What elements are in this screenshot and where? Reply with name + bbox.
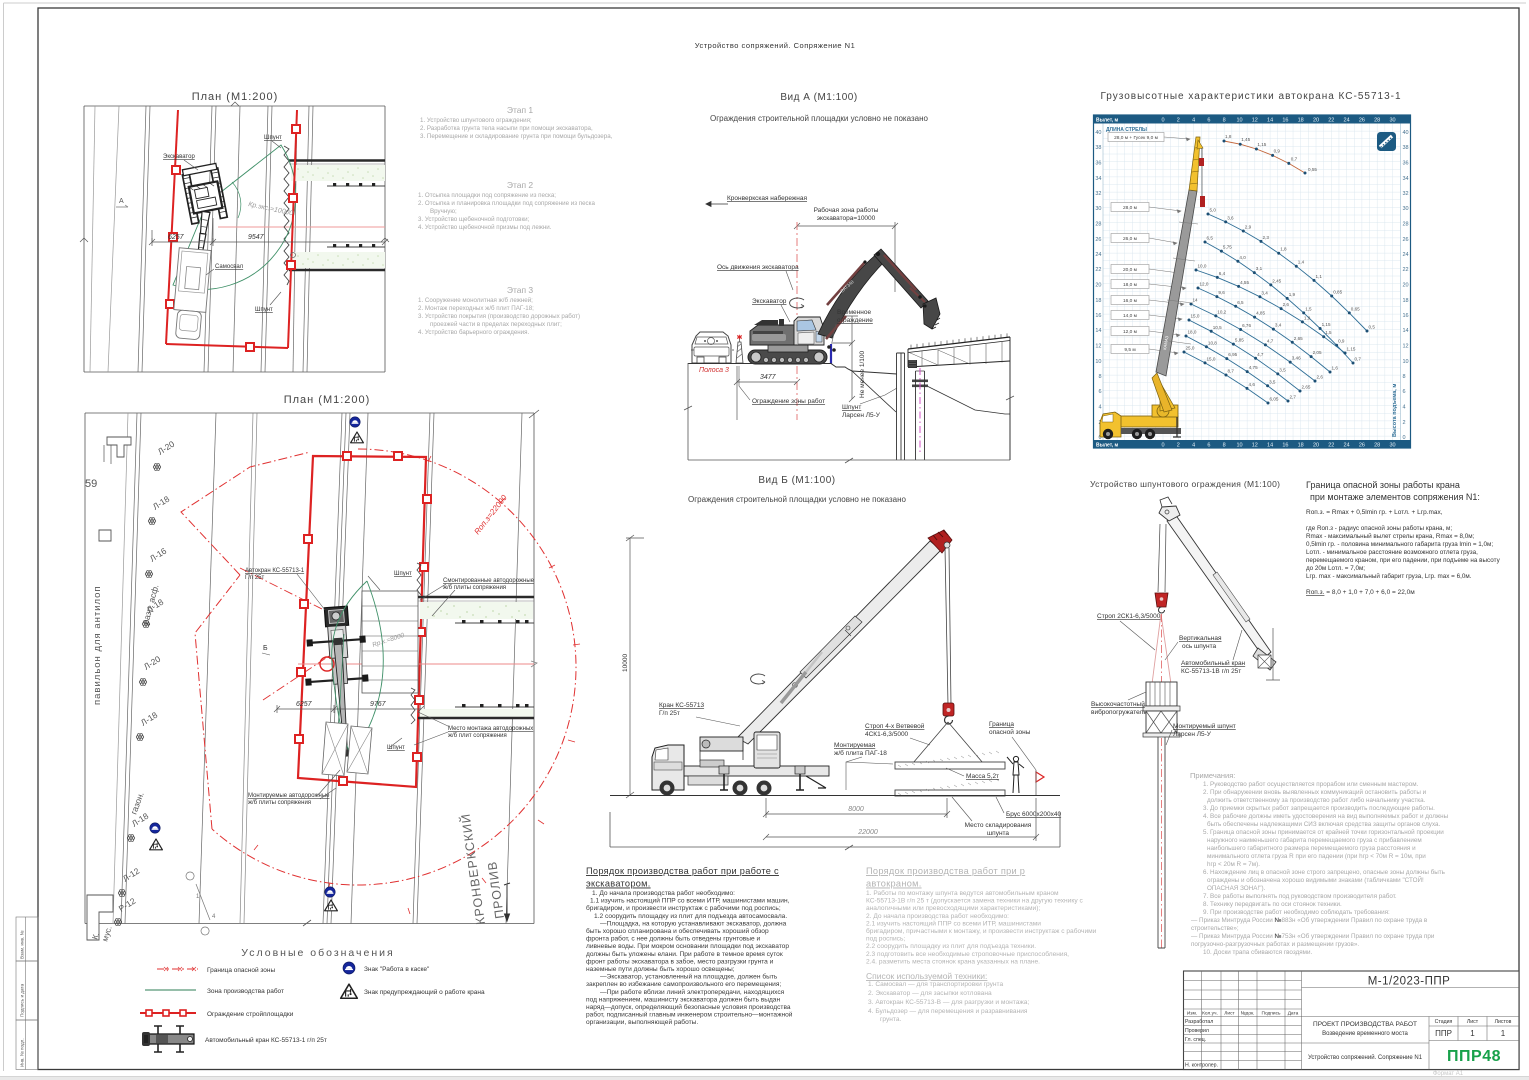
svg-text:Кран КС-55713: Кран КС-55713 [659, 702, 704, 709]
svg-text:4,6: 4,6 [1249, 382, 1256, 387]
svg-text:бригадиром, причастными к м: бригадиром, причастными к монтажу, и про… [866, 927, 1097, 935]
svg-text:Листов: Листов [1495, 1019, 1512, 1025]
svg-text:24: 24 [1095, 252, 1101, 258]
svg-text:26: 26 [1403, 237, 1409, 243]
svg-text:20: 20 [1403, 283, 1409, 289]
svg-text:28,0 м: 28,0 м [1123, 205, 1137, 211]
svg-text:Шпунт: Шпунт [264, 135, 282, 141]
svg-text:Устройство сопряжений. Сопря: Устройство сопряжений. Сопряжение N1 [695, 41, 856, 50]
svg-text:работ, подписанный главным: работ, подписанный главным инженером стр… [586, 1011, 793, 1019]
svg-text:18: 18 [1095, 298, 1101, 304]
svg-text:Устройство шпунтового огражден: Устройство шпунтового ограждения (М1:100… [1090, 479, 1280, 489]
svg-text:экскаватором.: экскаватором. [586, 879, 651, 889]
svg-text:1. Работы по монтажу шпунта: 1. Работы по монтажу шпунта ведутся авто… [866, 889, 1059, 897]
svg-text:28: 28 [1374, 118, 1380, 124]
svg-text:7. Все работы выполнять под: 7. Все работы выполнять под руководством… [1203, 892, 1397, 900]
svg-text:4,7: 4,7 [1267, 338, 1274, 343]
svg-text:Этап 3: Этап 3 [507, 285, 534, 295]
svg-text:1,15: 1,15 [1347, 347, 1356, 352]
svg-text:Ларсен Л5-У: Ларсен Л5-У [1173, 731, 1212, 738]
svg-text:1. Отсыпка площадки под соп: 1. Отсыпка площадки под сопряжение из пе… [418, 192, 556, 199]
svg-text:5,75: 5,75 [1223, 245, 1232, 250]
svg-text:Этап 1: Этап 1 [507, 105, 534, 115]
svg-text:5,0: 5,0 [1210, 208, 1217, 213]
svg-text:Кол.уч.: Кол.уч. [1202, 1011, 1218, 1017]
svg-text:2,6: 2,6 [1317, 375, 1324, 380]
svg-text:ж/б плиты сопряжения: ж/б плиты сопряжения [443, 585, 506, 591]
svg-text:6257: 6257 [296, 701, 313, 708]
svg-text:ж/б плит сопряжения: ж/б плит сопряжения [448, 733, 507, 739]
svg-text:Порядок производства работ: Порядок производства работ при работе с [586, 866, 779, 876]
svg-text:2.2 соорудить площадку из: 2.2 соорудить площадку из плит для подъе… [866, 943, 1036, 950]
svg-text:9,6: 9,6 [1218, 290, 1225, 295]
svg-text:24: 24 [1344, 118, 1350, 124]
svg-text:22: 22 [1403, 267, 1409, 273]
svg-text:14: 14 [1267, 443, 1273, 449]
svg-text:Знак предупреждающий о рабо: Знак предупреждающий о работе крана [364, 988, 485, 996]
svg-text:hгр < 20м R = 7м).: hгр < 20м R = 7м). [1207, 861, 1260, 868]
svg-text:Грузовысотные характеристики: Грузовысотные характеристики автокрана К… [1100, 91, 1401, 102]
svg-text:24: 24 [1344, 443, 1350, 449]
svg-text:опасной зоны: опасной зоны [989, 728, 1031, 736]
svg-text:Ларсен Л5-У: Ларсен Л5-У [842, 412, 881, 419]
svg-text:12,0 м: 12,0 м [1123, 329, 1137, 335]
svg-text:Временное: Временное [837, 309, 871, 316]
svg-text:Rоп.з. = Rmax + 0,5lmin г: Rоп.з. = Rmax + 0,5lmin гр. + Lотл. + Lг… [1306, 509, 1443, 516]
svg-text:10,2: 10,2 [1217, 309, 1226, 314]
svg-text:Устройство сопряжений. Сопря: Устройство сопряжений. Сопряжение N1 [1308, 1054, 1423, 1061]
svg-text:где Rоп.з - радиус опасной зон: где Rоп.з - радиус опасной зоны работы к… [1306, 524, 1452, 532]
svg-text:Строп 2СК1-6,3/5000: Строп 2СК1-6,3/5000 [1097, 613, 1161, 620]
svg-text:3. До приемки скрытых работ: 3. До приемки скрытых работ запрещается … [1203, 804, 1435, 812]
svg-text:9. При производстве работ не: 9. При производстве работ необходимо соб… [1203, 908, 1390, 916]
svg-text:Формат А1: Формат А1 [1433, 1071, 1464, 1077]
svg-text:должить ответственному за прои: должить ответственному за производство р… [1207, 796, 1426, 804]
svg-text:40: 40 [1403, 130, 1409, 136]
svg-text:1,8: 1,8 [1225, 134, 1232, 139]
svg-text:1,9: 1,9 [1289, 292, 1296, 297]
svg-text:Автомобильный кран КС-55713-: Автомобильный кран КС-55713-1 г/п 25т [205, 1036, 327, 1044]
svg-text:ППР: ППР [1435, 1029, 1452, 1038]
svg-text:наряд—допуск, определяющий б: наряд—допуск, определяющий безопасные ус… [586, 1003, 791, 1011]
svg-text:4. Бульдозер — для перем: 4. Бульдозер — для перемещения и разравн… [868, 1008, 1028, 1015]
svg-text:Rоп.з. = 8,0 + 1,0 + 7,0: Rоп.з. = 8,0 + 1,0 + 7,0 + 6,0 = 22,0м [1306, 589, 1415, 596]
svg-text:ось шпунта: ось шпунта [1182, 643, 1217, 650]
svg-text:0,9: 0,9 [1338, 339, 1345, 344]
svg-text:9767: 9767 [370, 701, 387, 708]
svg-text:Примечания:: Примечания: [1190, 771, 1235, 780]
svg-text:10. Доски трапа сбиваются гвоз: 10. Доски трапа сбиваются гвоздями. [1203, 948, 1312, 956]
svg-text:12: 12 [1252, 443, 1258, 449]
svg-text:1,6: 1,6 [1332, 366, 1339, 371]
svg-text:организации, выполняющей раб: организации, выполняющей работы. [586, 1018, 698, 1026]
svg-text:6. Нахождение лиц в опасной: 6. Нахождение лиц в опасной зоне строго … [1203, 868, 1446, 876]
svg-text:Н. контролер.: Н. контролер. [1185, 1063, 1218, 1069]
svg-text:3477: 3477 [760, 374, 777, 381]
svg-text:Граница опасной зоны работы кр: Граница опасной зоны работы крана [1306, 480, 1460, 490]
svg-text:28: 28 [1403, 222, 1409, 228]
svg-text:— Приказ Минтруда России №: — Приказ Минтруда России №883н «Об утвер… [1191, 916, 1428, 924]
svg-text:М-1/2023-ППР: М-1/2023-ППР [1368, 976, 1451, 988]
svg-text:2. До начала производства р: 2. До начала производства работ необходи… [866, 912, 1009, 920]
svg-text:шпунта: шпунта [987, 830, 1009, 837]
svg-text:перемещаемого краном, при его: перемещаемого краном, при его падении, п… [1306, 557, 1501, 564]
svg-text:8: 8 [1403, 374, 1406, 380]
svg-text:2. Монтаж переходных ж/б пл: 2. Монтаж переходных ж/б плит ПАГ-18; [418, 305, 534, 312]
svg-text:1.1 изучить настоящий ППР: 1.1 изучить настоящий ППР со всеми ИТР, … [590, 897, 790, 905]
svg-text:Лист: Лист [1224, 1011, 1235, 1017]
svg-text:59: 59 [85, 478, 97, 490]
svg-text:Автомобильный кран: Автомобильный кран [1181, 659, 1246, 667]
svg-text:до 20м Lотл. = 7,0м;: до 20м Lотл. = 7,0м; [1306, 565, 1365, 572]
svg-text:1. Руководство работ осущест: 1. Руководство работ осуществляется прор… [1203, 780, 1419, 788]
svg-text:Лист: Лист [1467, 1019, 1479, 1025]
svg-text:3. Устройство покрытия (про: 3. Устройство покрытия (производство дор… [418, 313, 580, 320]
svg-text:Вид А (М1:100): Вид А (М1:100) [780, 92, 857, 103]
svg-text:Ось движения экскаватора: Ось движения экскаватора [717, 264, 799, 271]
svg-text:Полоса 3: Полоса 3 [699, 367, 729, 374]
svg-text:Масса 5,2т: Масса 5,2т [966, 773, 999, 780]
svg-text:10: 10 [1403, 359, 1409, 365]
svg-text:Шпунт: Шпунт [255, 307, 273, 313]
svg-text:6: 6 [1403, 389, 1406, 395]
svg-text:наземные пути должны быть: наземные пути должны быть хорошо освещен… [586, 965, 735, 973]
svg-text:36: 36 [1403, 161, 1409, 167]
svg-text:4. Устройство щебеночной пр: 4. Устройство щебеночной призмы под лежн… [418, 224, 552, 231]
svg-text:16: 16 [1282, 118, 1288, 124]
svg-text:аналогичными или превосходящ: аналогичными или превосходящими характер… [866, 905, 1040, 912]
svg-text:минимального отлета груза R пр: минимального отлета груза R при его паде… [1207, 853, 1426, 860]
svg-text:закреплен во избежание само: закреплен во избежание самопроизвольного… [586, 980, 781, 988]
svg-text:4,55: 4,55 [1240, 280, 1249, 285]
svg-text:10: 10 [1236, 118, 1242, 124]
svg-text:Рабочая зона работы: Рабочая зона работы [814, 206, 879, 214]
svg-text:20: 20 [1095, 283, 1101, 289]
svg-text:ж/б плита ПАГ-18: ж/б плита ПАГ-18 [834, 749, 887, 757]
svg-text:2,65: 2,65 [1294, 336, 1303, 341]
svg-text:5. Граница опасной зоны прин: 5. Граница опасной зоны принимается от к… [1203, 828, 1444, 836]
svg-text:18: 18 [1403, 298, 1409, 304]
svg-text:6: 6 [1207, 118, 1210, 124]
svg-text:ж/б плиты сопряжения: ж/б плиты сопряжения [248, 800, 311, 806]
svg-text:0,7: 0,7 [1291, 156, 1298, 161]
svg-text:должны быть уложены елани.: должны быть уложены елани. При работе в … [586, 950, 783, 958]
svg-text:ограждены и обозначена хорош: ограждены и обозначена хорошо видимыми з… [1207, 875, 1424, 884]
svg-text:1,8: 1,8 [1280, 247, 1287, 252]
svg-text:Ограждение зоны работ: Ограждение зоны работ [752, 397, 825, 405]
svg-text:0: 0 [1161, 443, 1164, 449]
svg-text:Дата: Дата [1288, 1011, 1299, 1017]
svg-text:под роспись;: под роспись; [866, 936, 905, 943]
svg-text:наибольшего габаритного размер: наибольшего габаритного размера перемеща… [1207, 844, 1416, 852]
svg-text:16: 16 [1403, 313, 1409, 319]
svg-text:Монтируемые автодорожные: Монтируемые автодорожные [248, 793, 330, 799]
svg-text:14: 14 [1267, 118, 1273, 124]
svg-text:8: 8 [1223, 443, 1226, 449]
svg-text:18,0 м: 18,0 м [1123, 282, 1137, 288]
svg-text:4,7: 4,7 [1257, 352, 1264, 357]
svg-text:6,5: 6,5 [1237, 300, 1244, 305]
svg-text:2,9: 2,9 [1245, 225, 1252, 230]
svg-text:15,0: 15,0 [1207, 356, 1216, 361]
svg-text:ограждение: ограждение [837, 317, 873, 324]
svg-text:погрузочно-разгрузочных работа: погрузочно-разгрузочных работах и размещ… [1191, 940, 1359, 948]
svg-text:грунта.: грунта. [880, 1016, 902, 1023]
svg-text:Подпись и дата: Подпись и дата [20, 984, 25, 1017]
svg-text:Вылет, м: Вылет, м [1096, 443, 1119, 449]
svg-text:16: 16 [1095, 313, 1101, 319]
svg-text:1: 1 [1470, 1029, 1475, 1038]
svg-text:Брус 6000х200х40: Брус 6000х200х40 [1006, 811, 1061, 818]
svg-text:Изм.: Изм. [1187, 1011, 1197, 1017]
svg-text:26: 26 [1359, 443, 1365, 449]
svg-text:Знак "Работа в каске": Знак "Работа в каске" [364, 965, 430, 973]
svg-text:14: 14 [1193, 298, 1199, 303]
svg-text:ПРОЕКТ ПРОИЗВОДСТВА РАБОТ: ПРОЕКТ ПРОИЗВОДСТВА РАБОТ [1313, 1021, 1417, 1028]
svg-text:План (М1:200): План (М1:200) [284, 394, 371, 406]
svg-text:ОПАСНАЯ ЗОНА!").: ОПАСНАЯ ЗОНА!"). [1207, 885, 1266, 892]
svg-text:2: 2 [1177, 443, 1180, 449]
svg-text:5,85: 5,85 [1235, 338, 1244, 343]
svg-text:1,5: 1,5 [1305, 306, 1312, 311]
svg-text:10,0: 10,0 [1198, 264, 1207, 269]
svg-text:2. Экскаватор — для засы: 2. Экскаватор — для засыпки котлована [868, 990, 992, 997]
svg-text:1,5: 1,5 [1325, 330, 1332, 335]
svg-text:2.1 изучить настоящий: 2.1 изучить настоящий ППР со всеми ИТР, … [866, 919, 1041, 927]
svg-text:26: 26 [1095, 237, 1101, 243]
svg-text:10: 10 [1236, 443, 1242, 449]
svg-text:Разработал: Разработал [1185, 1019, 1213, 1025]
svg-text:КС-55713-1В г/п 25т: КС-55713-1В г/п 25т [1181, 668, 1241, 675]
svg-text:6,95: 6,95 [1228, 352, 1237, 357]
svg-text:16: 16 [1282, 443, 1288, 449]
svg-text:1,15: 1,15 [1257, 142, 1266, 147]
svg-text:4. Все рабочие должны иметь: 4. Все рабочие должны иметь удостоверени… [1203, 812, 1449, 820]
svg-text:8. Технику передвигать по ос: 8. Технику передвигать по оси стоянок те… [1203, 901, 1342, 908]
svg-text:3,5: 3,5 [1269, 379, 1276, 384]
svg-text:4: 4 [1098, 405, 1101, 411]
svg-text:быть обеспечены надлежащими СИ: быть обеспечены надлежащими СИЗ включая … [1207, 820, 1441, 828]
svg-text:2.3 подготовить все необход: 2.3 подготовить все необходимые стропово… [866, 950, 1069, 958]
svg-text:Шпунт: Шпунт [394, 571, 412, 577]
svg-text:Высота подъема, м: Высота подъема, м [1392, 384, 1398, 437]
svg-text:30: 30 [1389, 118, 1395, 124]
svg-text:под напряжением, машинисту: под напряжением, машинисту экскаватора д… [586, 995, 780, 1003]
svg-text:вибропогружатель: вибропогружатель [1091, 708, 1147, 716]
svg-text:6,5: 6,5 [1207, 236, 1214, 241]
svg-text:бригадиром, и произвести ин: бригадиром, и произвести инструктаж с ра… [586, 904, 781, 912]
svg-text:Шпунт: Шпунт [842, 404, 861, 411]
svg-text:38: 38 [1403, 145, 1409, 151]
svg-text:фронт работы экскаватора в: фронт работы экскаватора в забое, место … [586, 957, 774, 965]
svg-text:ливневые воды. При мокром: ливневые воды. При мокром основании площ… [586, 943, 789, 950]
svg-text:Подпись: Подпись [1262, 1011, 1281, 1017]
svg-text:№док.: №док. [1240, 1011, 1254, 1017]
svg-text:строительстве»;: строительстве»; [1191, 925, 1239, 932]
svg-text:2,05: 2,05 [1313, 350, 1322, 355]
svg-text:ППР48: ППР48 [1447, 1048, 1501, 1065]
svg-text:Инв. № подл.: Инв. № подл. [20, 1038, 25, 1067]
svg-text:Порядок производства: Порядок производства работ при р [866, 866, 1025, 876]
svg-text:1. Сооружение монолитная ж/: 1. Сооружение монолитная ж/б лежней; [418, 297, 533, 304]
svg-text:Монтируемая: Монтируемая [834, 742, 876, 749]
svg-text:Rmax - максимальный вылет с: Rmax - максимальный вылет стрелы крана, … [1306, 532, 1475, 540]
svg-text:4: 4 [1192, 443, 1195, 449]
svg-text:26,0 м: 26,0 м [1123, 236, 1137, 242]
svg-text:6: 6 [1098, 389, 1101, 395]
svg-text:экскаватора=10000: экскаватора=10000 [817, 215, 876, 222]
svg-text:30: 30 [1389, 443, 1395, 449]
svg-text:3. Перемещение и складирова: 3. Перемещение и складирование грунта пр… [420, 133, 613, 140]
svg-text:22: 22 [1095, 267, 1101, 273]
svg-text:2,7: 2,7 [1290, 395, 1297, 400]
svg-text:28: 28 [1374, 443, 1380, 449]
svg-text:30: 30 [1095, 206, 1101, 212]
svg-text:15,0: 15,0 [1191, 314, 1200, 319]
svg-text:—При работе вблизи линий э: —При работе вблизи линий электропередачи… [600, 988, 785, 996]
svg-text:18,0: 18,0 [1188, 330, 1197, 335]
svg-text:34: 34 [1403, 176, 1409, 182]
svg-text:1.2 соорудить площадку из: 1.2 соорудить площадку из плит для подъе… [594, 913, 787, 920]
svg-text:14: 14 [1095, 328, 1101, 334]
svg-text:3,4: 3,4 [1261, 290, 1268, 295]
svg-text:Шпунт: Шпунт [387, 745, 405, 751]
svg-text:Кронверкская набережная: Кронверкская набережная [727, 194, 807, 202]
svg-text:План (М1:200): План (М1:200) [192, 91, 279, 103]
svg-text:1,9: 1,9 [1304, 315, 1311, 320]
svg-text:16,0 м: 16,0 м [1123, 298, 1137, 304]
svg-text:3. Автокран КС-55713-В —: 3. Автокран КС-55713-В — для разгрузки и… [868, 999, 1029, 1006]
svg-text:фронта работ, с нее: фронта работ, с нее должны быть отведены… [586, 935, 761, 943]
svg-text:1,45: 1,45 [1241, 137, 1250, 142]
svg-text:3,1: 3,1 [1256, 266, 1263, 271]
svg-text:22: 22 [1328, 118, 1334, 124]
svg-text:10,8: 10,8 [1208, 340, 1217, 345]
svg-text:28,0 м + Гусек 9,0 м: 28,0 м + Гусек 9,0 м [1114, 135, 1158, 141]
svg-text:Смонтированные автодорожные: Смонтированные автодорожные [443, 578, 535, 584]
svg-text:3,4: 3,4 [1275, 323, 1282, 328]
svg-text:при монтаже элементов сопряжен: при монтаже элементов сопряжения N1: [1310, 492, 1480, 502]
svg-text:Этап 2: Этап 2 [507, 180, 534, 190]
svg-text:30: 30 [1403, 206, 1409, 212]
svg-text:6,76: 6,76 [1242, 323, 1251, 328]
svg-text:8,7: 8,7 [1228, 369, 1235, 374]
svg-text:4СК1-6,3/5000: 4СК1-6,3/5000 [865, 731, 909, 738]
svg-text:0,55: 0,55 [1308, 167, 1317, 172]
svg-text:Место монтажа автодорожных: Место монтажа автодорожных [448, 726, 533, 732]
svg-text:6,4: 6,4 [1219, 271, 1226, 276]
svg-text:32: 32 [1095, 191, 1101, 197]
svg-text:0,65: 0,65 [1351, 306, 1360, 311]
svg-text:2,65: 2,65 [1302, 385, 1311, 390]
svg-text:Г/п 25т: Г/п 25т [245, 575, 265, 581]
svg-text:Самосвал: Самосвал [215, 264, 244, 270]
svg-text:0,85: 0,85 [1333, 290, 1342, 295]
svg-text:4,85: 4,85 [1256, 311, 1265, 316]
svg-text:6257: 6257 [168, 234, 185, 241]
svg-text:2. Разработка грунта тела н: 2. Разработка грунта тела насыпи при пом… [420, 125, 593, 132]
svg-text:Условные обозначения: Условные обозначения [241, 947, 394, 959]
svg-text:1. До начала производст: 1. До начала производства работ необходи… [592, 889, 735, 897]
svg-text:25,0: 25,0 [1186, 346, 1195, 351]
svg-text:20: 20 [1313, 118, 1319, 124]
svg-text:8000: 8000 [848, 806, 864, 813]
svg-text:3,46: 3,46 [1292, 356, 1301, 361]
svg-text:Взам. инв. №: Взам. инв. № [20, 930, 25, 959]
svg-text:0: 0 [1161, 118, 1164, 124]
svg-text:24: 24 [1403, 252, 1409, 258]
svg-text:Проверил: Проверил [1185, 1028, 1209, 1034]
svg-text:8: 8 [1223, 118, 1226, 124]
svg-text:20,0 м: 20,0 м [1123, 267, 1137, 273]
svg-text:ДЛИНА СТРЕЛЫ: ДЛИНА СТРЕЛЫ [1106, 127, 1147, 133]
svg-text:Б: Б [263, 645, 268, 652]
svg-text:Граница опасной зоны: Граница опасной зоны [207, 966, 276, 974]
svg-text:2. При обнаружении вновь выя: 2. При обнаружении вновь выявленных комм… [1203, 788, 1427, 796]
svg-text:Гл. спец.: Гл. спец. [1185, 1037, 1206, 1043]
svg-text:Автокран КС-55713-1: Автокран КС-55713-1 [245, 568, 305, 574]
svg-text:1,4: 1,4 [1298, 260, 1305, 265]
svg-text:6,05: 6,05 [1270, 397, 1279, 402]
svg-text:12: 12 [1252, 118, 1258, 124]
svg-text:28: 28 [1095, 222, 1101, 228]
svg-text:Возведение временного моста: Возведение временного моста [1322, 1031, 1408, 1037]
svg-text:2,45: 2,45 [1272, 278, 1281, 283]
svg-text:—Экскаватор, установленный н: —Экскаватор, установленный на площадке, … [600, 973, 778, 981]
svg-text:3. Устройство щебеночной по: 3. Устройство щебеночной подготовки; [418, 216, 530, 223]
svg-text:0: 0 [1403, 435, 1406, 441]
svg-text:40: 40 [1095, 130, 1101, 136]
svg-text:КС-55713-1В г/п 25 т (допу: КС-55713-1В г/п 25 т (допускается замена… [866, 898, 1083, 905]
svg-text:2.4. разметить места стояно: 2.4. разметить места стоянок крана указа… [866, 958, 1040, 965]
svg-text:Вид Б (М1:100): Вид Б (М1:100) [758, 475, 835, 486]
svg-text:36: 36 [1095, 161, 1101, 167]
svg-text:4,0: 4,0 [1239, 255, 1246, 260]
svg-text:12: 12 [1403, 344, 1409, 350]
svg-text:26: 26 [1359, 118, 1365, 124]
svg-text:12,0: 12,0 [1200, 282, 1209, 287]
svg-text:Место складирования: Место складирования [965, 822, 1032, 829]
svg-text:Граница: Граница [989, 721, 1014, 728]
svg-text:быть хорошо спланирована: быть хорошо спланирована и обеспечивать … [586, 927, 769, 935]
svg-text:2,3: 2,3 [1263, 235, 1270, 240]
svg-text:22: 22 [1328, 443, 1334, 449]
svg-text:Высокочастотный: Высокочастотный [1091, 700, 1145, 708]
svg-text:Г/п 25т: Г/п 25т [659, 710, 680, 717]
svg-text:Не менее 1/100: Не менее 1/100 [859, 351, 866, 398]
svg-text:Экскаватор: Экскаватор [163, 154, 195, 160]
svg-text:14,0 м: 14,0 м [1123, 313, 1137, 319]
svg-text:38: 38 [1095, 145, 1101, 151]
svg-text:0,9: 0,9 [1274, 148, 1281, 153]
svg-text:Зона производства работ: Зона производства работ [207, 987, 284, 995]
svg-text:12: 12 [1095, 344, 1101, 350]
svg-text:Ограждения строительной площад: Ограждения строительной площадки условно… [688, 495, 906, 504]
svg-text:2. Отсыпка и планировка пло: 2. Отсыпка и планировка площадки под соп… [418, 200, 595, 207]
svg-text:4. Устройство барьерного ог: 4. Устройство барьерного ограждения. [418, 329, 529, 336]
svg-text:— Приказ Минтруда России №: — Приказ Минтруда России №753н «Об утвер… [1191, 932, 1435, 940]
svg-text:2,6: 2,6 [1283, 302, 1290, 307]
svg-text:3,6: 3,6 [1227, 215, 1234, 220]
svg-text:Ограждения строительной площад: Ограждения строительной площадки условно… [710, 114, 928, 123]
svg-text:Lгр. max - максимальный габари: Lгр. max - максимальный габарит груза, L… [1306, 572, 1472, 580]
svg-text:8: 8 [1098, 374, 1101, 380]
svg-text:Вертикальная: Вертикальная [1179, 635, 1222, 642]
svg-text:18: 18 [1298, 443, 1304, 449]
svg-text:32: 32 [1403, 191, 1409, 197]
svg-text:наружного наименьшего габарита: наружного наименьшего габарита перемещае… [1207, 836, 1422, 844]
svg-text:6: 6 [1207, 443, 1210, 449]
